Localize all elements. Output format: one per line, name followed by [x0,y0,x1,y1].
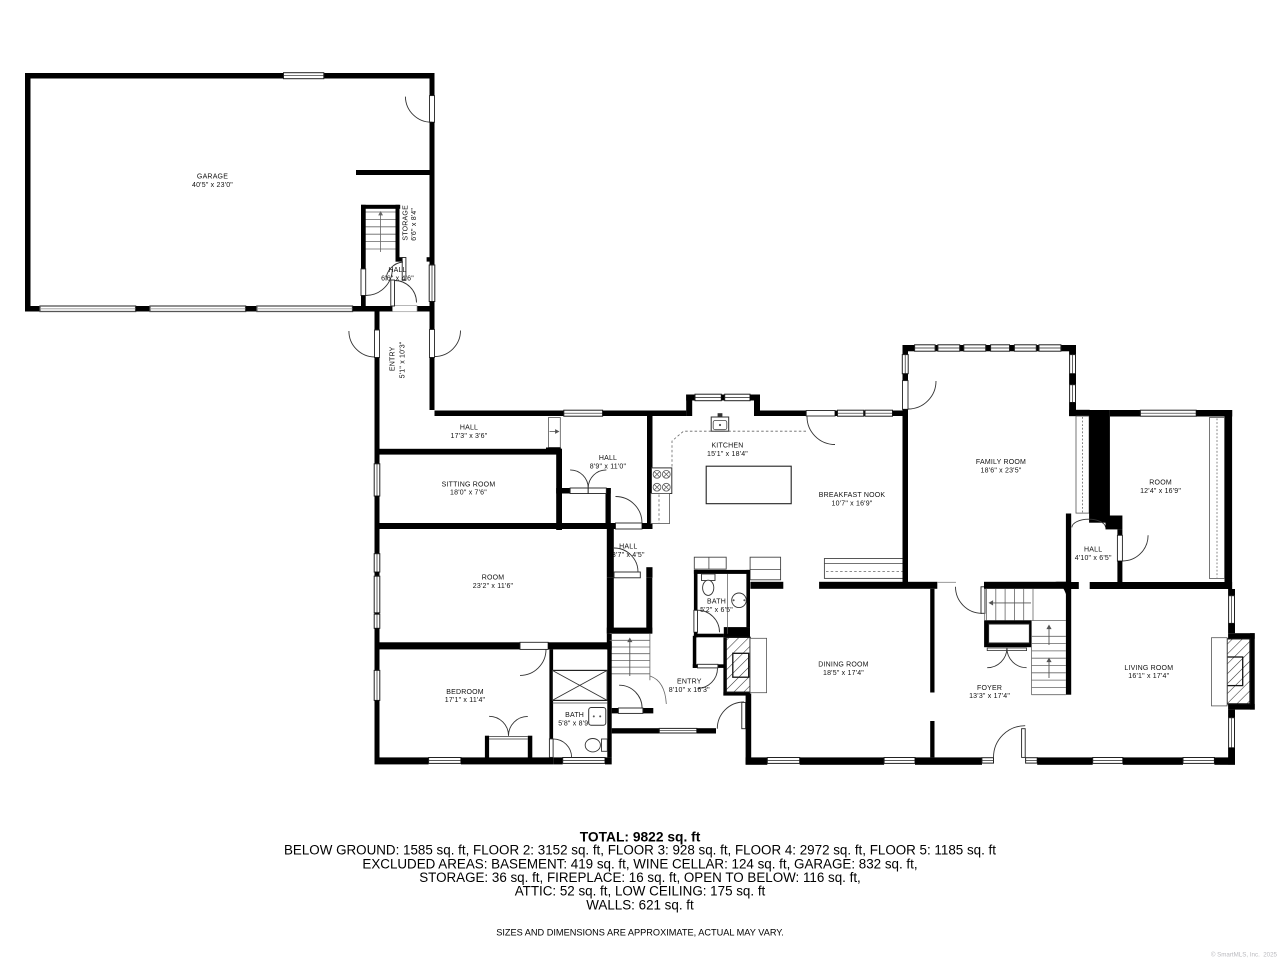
svg-text:8'9" x 11'0": 8'9" x 11'0" [590,464,627,471]
svg-text:HALL: HALL [599,455,617,462]
svg-text:ATTIC: 52 sq. ft, LOW CEILING:: ATTIC: 52 sq. ft, LOW CEILING: 175 sq. f… [515,884,766,899]
svg-text:GARAGE: GARAGE [197,174,228,181]
svg-text:SIZES AND DIMENSIONS ARE APPRO: SIZES AND DIMENSIONS ARE APPROXIMATE, AC… [496,928,784,938]
svg-text:ENTRY: ENTRY [389,346,396,371]
svg-text:© SmartMLS, Inc. 2025: © SmartMLS, Inc. 2025 [1211,952,1278,959]
svg-text:BATH: BATH [707,599,726,606]
svg-text:18'0" x 7'6": 18'0" x 7'6" [450,490,487,497]
svg-text:18'6" x 23'5": 18'6" x 23'5" [981,467,1022,474]
svg-text:FOYER: FOYER [977,685,1002,692]
svg-text:ENTRY: ENTRY [677,679,702,686]
svg-text:6'6" x 8'4": 6'6" x 8'4" [411,208,418,241]
svg-text:BREAKFAST NOOK: BREAKFAST NOOK [819,492,886,499]
svg-text:WALLS: 621 sq. ft: WALLS: 621 sq. ft [586,898,694,913]
svg-text:8'10" x 16'3": 8'10" x 16'3" [669,687,710,694]
svg-text:17'3" x 3'6": 17'3" x 3'6" [451,433,488,440]
svg-text:5'2" x 6'5": 5'2" x 6'5" [700,607,733,614]
svg-text:40'5" x 23'0": 40'5" x 23'0" [192,182,233,189]
svg-text:BATH: BATH [565,712,584,719]
svg-text:13'3" x 17'4": 13'3" x 17'4" [969,693,1010,700]
svg-text:ROOM: ROOM [1149,480,1172,487]
svg-text:SITTING ROOM: SITTING ROOM [442,481,496,488]
svg-text:LIVING ROOM: LIVING ROOM [1124,665,1173,672]
svg-text:HALL: HALL [1084,547,1102,554]
svg-text:HALL: HALL [460,425,478,432]
svg-text:STORAGE: STORAGE [403,205,410,241]
svg-text:18'5" x 17'4": 18'5" x 17'4" [823,670,864,677]
svg-text:5'8" x 8'9": 5'8" x 8'9" [558,720,591,727]
svg-text:15'1" x 18'4": 15'1" x 18'4" [707,451,748,458]
svg-text:4'10" x 6'5": 4'10" x 6'5" [1075,555,1112,562]
svg-text:HALL: HALL [388,267,406,274]
svg-text:5'1" x 10'3": 5'1" x 10'3" [400,341,407,378]
svg-text:FAMILY ROOM: FAMILY ROOM [976,459,1026,466]
svg-text:17'1" x 11'4": 17'1" x 11'4" [445,697,486,704]
svg-text:BELOW GROUND: 1585 sq. ft, FLO: BELOW GROUND: 1585 sq. ft, FLOOR 2: 3152… [284,843,996,858]
svg-text:23'2" x 11'6": 23'2" x 11'6" [473,583,514,590]
svg-text:6'6" x 4'6": 6'6" x 4'6" [381,275,414,282]
svg-text:10'7" x 16'9": 10'7" x 16'9" [832,500,873,507]
svg-text:16'1" x 17'4": 16'1" x 17'4" [1128,673,1169,680]
svg-text:ROOM: ROOM [482,575,505,582]
svg-text:KITCHEN: KITCHEN [711,443,743,450]
svg-text:DINING ROOM: DINING ROOM [818,662,868,669]
svg-text:12'4" x 16'9": 12'4" x 16'9" [1140,488,1181,495]
svg-text:BEDROOM: BEDROOM [446,689,484,696]
